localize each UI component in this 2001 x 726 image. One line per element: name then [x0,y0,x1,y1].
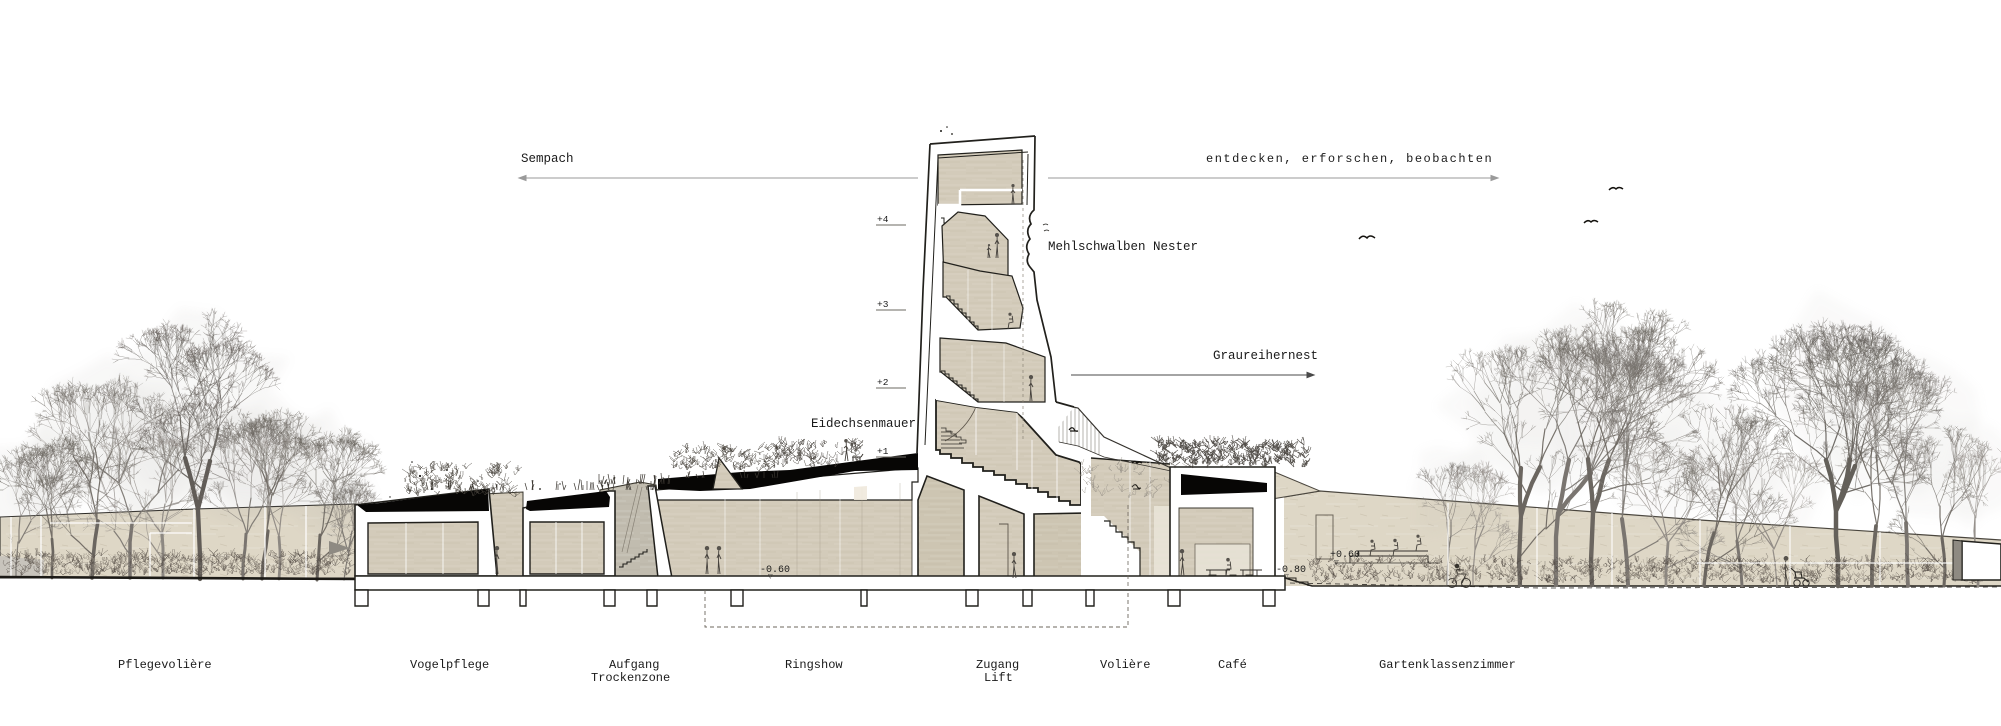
svg-text:Pflegevolière: Pflegevolière [118,658,212,672]
svg-text:Volière: Volière [1100,658,1150,672]
svg-text:Sempach: Sempach [521,152,574,166]
svg-text:Trockenzone: Trockenzone [591,671,670,685]
svg-text:+1: +1 [877,446,889,457]
svg-text:▽: ▽ [768,573,773,580]
svg-text:Eidechsenmauer: Eidechsenmauer [811,417,916,431]
svg-text:Lift: Lift [984,671,1013,685]
svg-text:-0.60: -0.60 [760,565,790,576]
svg-text:▽: ▽ [1334,559,1339,566]
svg-text:+2: +2 [877,377,889,388]
svg-text:Mehlschwalben Nester: Mehlschwalben Nester [1048,240,1198,254]
svg-text:▽: ▽ [1284,573,1289,580]
svg-text:+4: +4 [877,214,889,225]
svg-text:Ringshow: Ringshow [785,658,843,672]
svg-text:entdecken, erforschen, beobach: entdecken, erforschen, beobachten [1206,152,1493,166]
svg-text:+3: +3 [877,299,889,310]
svg-text:Zugang: Zugang [976,658,1019,672]
svg-text:Gartenklassenzimmer: Gartenklassenzimmer [1379,658,1516,672]
svg-text:Café: Café [1218,658,1247,672]
svg-text:Graureihernest: Graureihernest [1213,349,1318,363]
svg-text:Vogelpflege: Vogelpflege [410,658,489,672]
svg-text:Aufgang: Aufgang [609,658,659,672]
svg-text:-0.80: -0.80 [1276,565,1306,576]
